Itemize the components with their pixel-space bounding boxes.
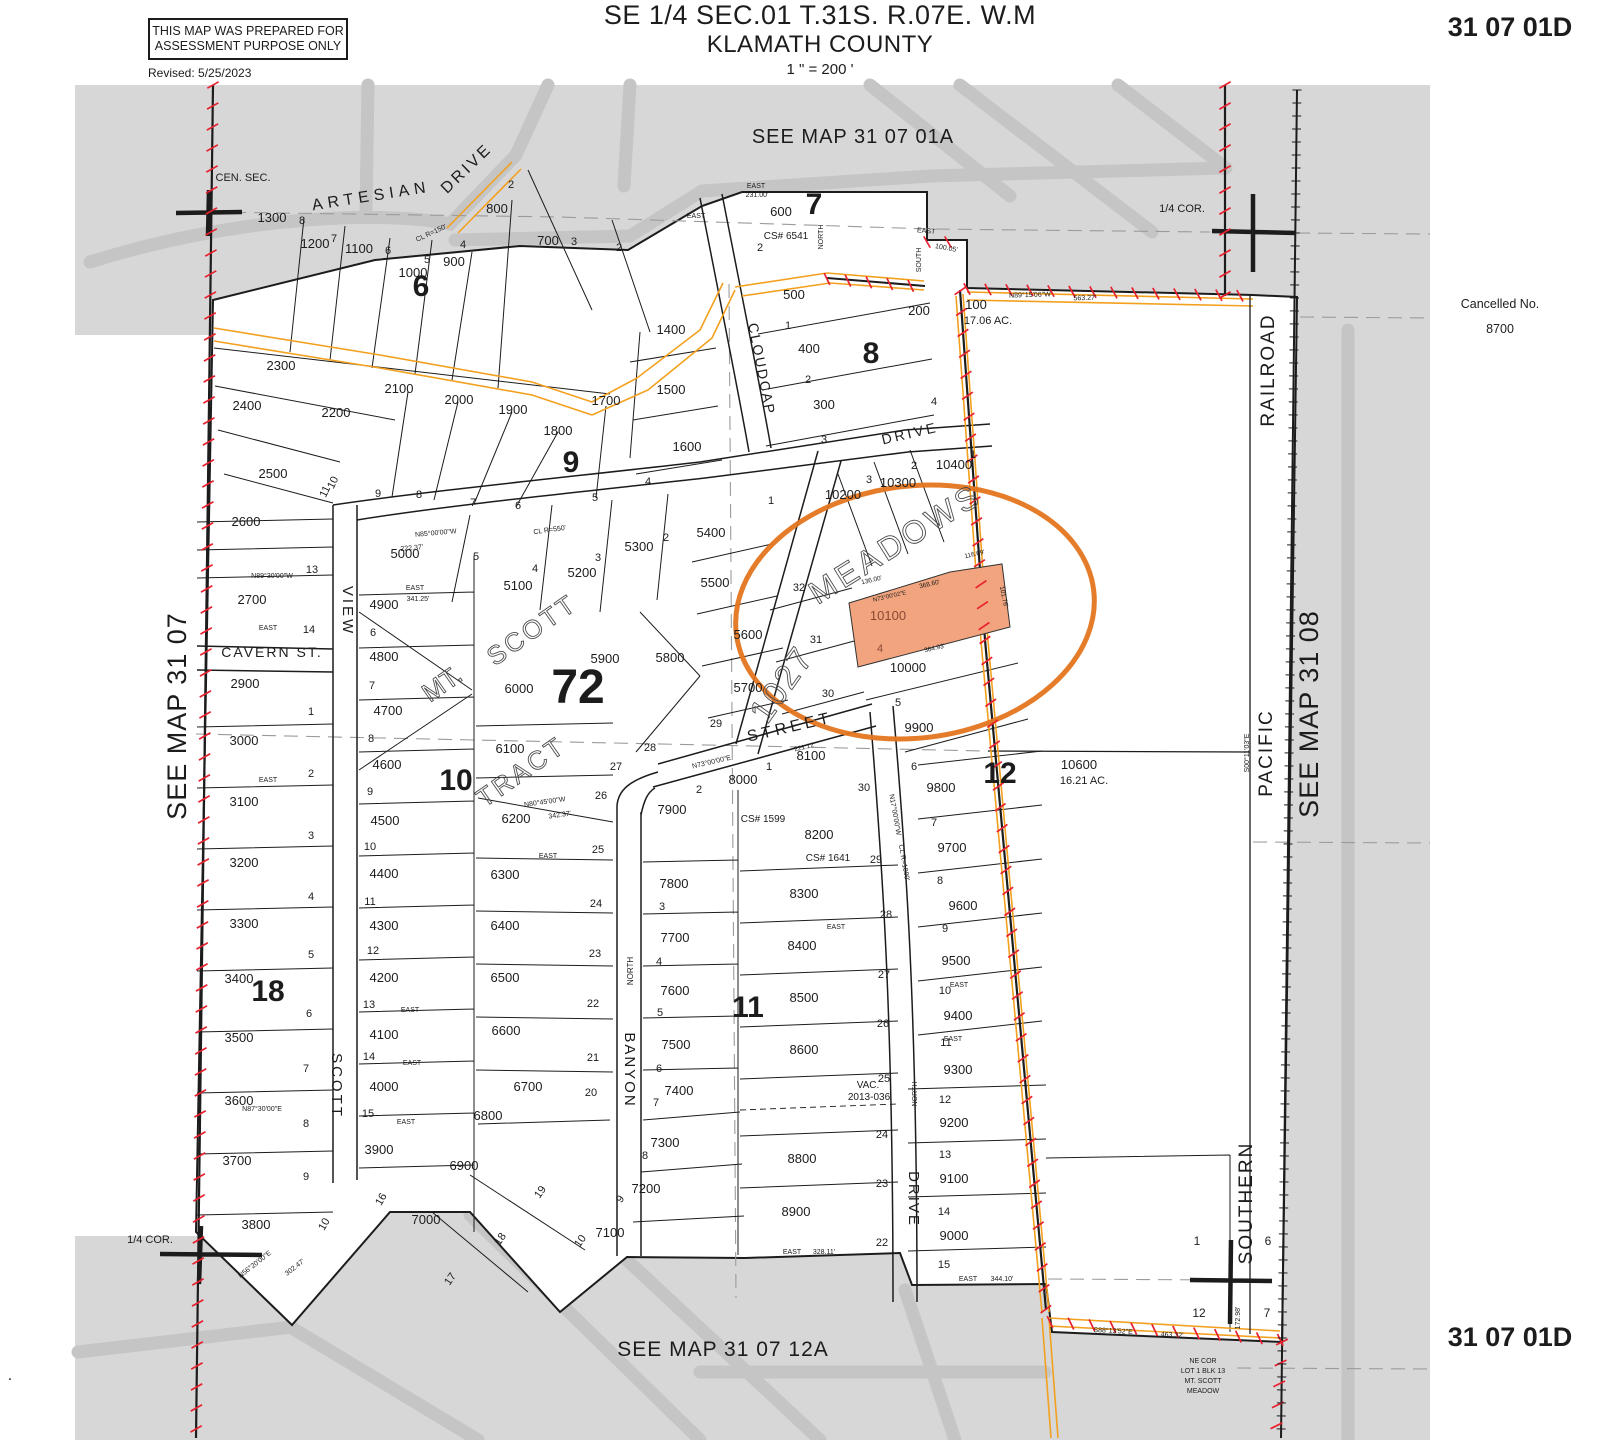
map-label: 2: [696, 784, 702, 796]
map-label: 9100: [940, 1171, 969, 1186]
map-label: 7: [303, 1063, 309, 1075]
map-label: 10: [364, 841, 376, 853]
map-label: NE COR: [1189, 1358, 1216, 1365]
plat-map-canvas: SEE MAP 31 07 01ASEE MAP 31 07 12ASEE MA…: [0, 0, 1600, 1440]
map-label: 5: [473, 551, 479, 563]
map-label: 4400: [370, 866, 399, 881]
map-label: 6200: [502, 811, 531, 826]
map-label: 8: [299, 215, 305, 227]
map-label: 1000: [399, 265, 428, 280]
map-label: 6900: [450, 1158, 479, 1173]
map-label: EAST: [959, 1276, 978, 1283]
map-label: 8200: [805, 827, 834, 842]
map-label: 3: [866, 474, 872, 486]
map-label: 9: [375, 488, 381, 500]
map-label: 4700: [374, 703, 403, 718]
map-label: 7800: [660, 876, 689, 891]
map-label: 3900: [365, 1142, 394, 1157]
map-label: 9: [563, 446, 580, 479]
map-label: LOT 1 BLK 13: [1181, 1368, 1225, 1375]
map-label: 6500: [491, 970, 520, 985]
map-label: 6300: [491, 867, 520, 882]
map-label: 4500: [371, 813, 400, 828]
map-label: 300: [813, 397, 835, 412]
map-label: 5600: [734, 627, 763, 642]
map-label: N89°30'00"W: [251, 572, 293, 580]
map-label: 1200: [301, 236, 330, 251]
map-label: 5200: [568, 565, 597, 580]
map-label: 17.06 AC.: [964, 315, 1012, 327]
map-label: 2: [663, 532, 669, 544]
map-label: 7600: [661, 983, 690, 998]
map-label: 5: [424, 254, 430, 266]
map-label: 4200: [370, 970, 399, 985]
map-label: 11: [364, 896, 375, 908]
map-label: EAST: [401, 1007, 420, 1014]
map-label: CS# 1641: [806, 853, 851, 864]
map-label: 3300: [230, 916, 259, 931]
map-label: 1700: [592, 393, 621, 408]
map-label: 7100: [596, 1225, 625, 1240]
map-label: 328.11': [813, 1249, 835, 1256]
map-label: PACIFIC: [1256, 709, 1277, 797]
map-label: 23: [589, 948, 601, 960]
map-label: EAST: [259, 777, 278, 784]
map-label: SEE MAP 31 07 01A: [752, 126, 954, 148]
map-label: 2600: [232, 514, 261, 529]
map-label: 1600: [673, 439, 702, 454]
map-label: 30: [822, 688, 834, 700]
map-label: EAST: [747, 183, 766, 190]
map-label: 6: [656, 1063, 662, 1075]
map-label: EAST: [783, 1249, 802, 1256]
map-label: 14: [303, 624, 315, 636]
map-label: SEE MAP 31 07 12A: [617, 1338, 829, 1361]
map-label: 9900: [905, 720, 934, 735]
map-label: 3200: [230, 855, 259, 870]
map-label: 7: [470, 497, 476, 509]
map-label: 25: [878, 1073, 890, 1085]
map-label: 2: [508, 179, 514, 191]
map-label: 29: [870, 854, 882, 866]
map-label: 3: [308, 830, 314, 842]
map-label: 12: [939, 1094, 951, 1106]
map-label: 4800: [370, 649, 399, 664]
map-label: 8500: [790, 990, 819, 1005]
map-label: 7300: [651, 1135, 680, 1150]
map-label: 3: [659, 901, 665, 913]
map-label: 9800: [927, 780, 956, 795]
map-label: 2200: [322, 405, 351, 420]
map-label: 4: [532, 563, 538, 575]
map-label: 20: [585, 1087, 597, 1099]
map-label: 31: [810, 634, 822, 646]
map-label: 3100: [230, 794, 259, 809]
map-label: EAST: [259, 625, 278, 632]
map-label: 8600: [790, 1042, 819, 1057]
map-label: CEN. SEC.: [215, 172, 270, 184]
map-label: 7700: [661, 930, 690, 945]
plat-map-page: SEE MAP 31 07 01ASEE MAP 31 07 12ASEE MA…: [0, 0, 1600, 1440]
map-label: SEE MAP 31 08: [1294, 610, 1324, 818]
map-label: 18: [251, 975, 284, 1008]
map-label: 4000: [370, 1079, 399, 1094]
map-label: 10100: [870, 608, 906, 623]
map-label: 700: [537, 233, 559, 248]
map-label: 200: [908, 303, 930, 318]
map-label: EAST: [406, 585, 425, 592]
map-label: 1: [308, 706, 314, 718]
map-label: EAST: [397, 1119, 416, 1126]
map-label: 500: [783, 287, 805, 302]
map-label: DRIVE: [905, 1171, 922, 1227]
map-label: 9500: [942, 953, 971, 968]
map-label: EAST: [687, 213, 706, 220]
map-label: 3500: [225, 1030, 254, 1045]
map-label: 2300: [267, 358, 296, 373]
map-label: 13: [363, 999, 375, 1011]
map-label: 463.32': [1161, 1331, 1184, 1339]
map-label: 563.27': [1073, 295, 1096, 303]
map-label: 1: [785, 320, 791, 332]
map-label: 6400: [491, 918, 520, 933]
map-label: 30: [858, 782, 870, 794]
map-label: 3: [595, 552, 601, 564]
map-label: 344.10': [991, 1276, 1014, 1283]
map-label: 6: [515, 500, 521, 512]
map-label: MEADOW: [1187, 1388, 1220, 1395]
map-label: 7500: [662, 1037, 691, 1052]
map-label: 8300: [790, 886, 819, 901]
map-label: 800: [486, 201, 508, 216]
map-label: 3: [571, 236, 577, 248]
map-label: 1/4 COR.: [1159, 203, 1205, 215]
map-label: 6: [306, 1008, 312, 1020]
map-label: VIEW: [339, 586, 356, 636]
map-label: 4: [931, 396, 937, 408]
map-label: 2500: [259, 466, 288, 481]
map-label: 32: [793, 582, 805, 594]
map-label: 13: [939, 1149, 951, 1161]
map-label: 1/4 COR.: [127, 1234, 173, 1246]
map-label: 4: [656, 956, 662, 968]
map-label: 11: [732, 991, 764, 1024]
map-label: CAVERN ST.: [221, 644, 322, 660]
map-label: 1800: [544, 423, 573, 438]
map-label: 1: [970, 449, 976, 461]
map-label: NORTH: [818, 225, 825, 250]
map-label: 13: [306, 564, 318, 576]
map-label: 12: [983, 757, 1016, 790]
map-label: 14: [938, 1206, 950, 1218]
map-label: S00°11'03"E: [1243, 733, 1251, 772]
map-label: 8000: [729, 772, 758, 787]
map-label: 10000: [890, 660, 926, 675]
map-label: 2400: [233, 398, 262, 413]
map-label: CS# 1599: [741, 814, 786, 825]
map-label: 5: [592, 492, 598, 504]
map-label: 2: [308, 768, 314, 780]
map-label: 7: [931, 817, 937, 829]
map-label: 4: [460, 239, 466, 251]
map-label: 10200: [825, 487, 861, 502]
map-label: 6: [911, 761, 917, 773]
map-label: 1400: [657, 322, 686, 337]
map-label: 5100: [504, 578, 533, 593]
map-label: 6600: [492, 1023, 521, 1038]
map-label: 7000: [412, 1212, 441, 1227]
map-label: 5: [308, 949, 314, 961]
map-label: .: [8, 1367, 12, 1384]
map-label: CS# 6541: [764, 231, 809, 242]
map-label: 7: [1264, 1306, 1271, 1320]
map-label: EAST: [950, 982, 969, 989]
map-label: 5800: [656, 650, 685, 665]
map-label: 24: [590, 898, 602, 910]
map-label: 9700: [938, 840, 967, 855]
map-label: EAST: [403, 1060, 422, 1067]
map-label: 9: [303, 1171, 309, 1183]
map-label: 8: [937, 875, 943, 887]
map-label: 1100: [345, 241, 373, 256]
map-label: 8: [863, 337, 880, 370]
map-label: 26: [595, 790, 607, 802]
map-label: 1: [766, 761, 772, 773]
map-label: EAST: [539, 853, 558, 860]
map-label: 8800: [788, 1151, 817, 1166]
map-label: NORTH: [626, 957, 635, 986]
map-label: 29: [710, 718, 722, 730]
map-label: 600: [770, 204, 792, 219]
map-label: 2700: [238, 592, 267, 607]
map-label: 6700: [514, 1079, 543, 1094]
map-label: 7: [331, 233, 337, 245]
map-label: 27: [878, 969, 890, 981]
map-label: 1500: [657, 382, 686, 397]
map-label: 10600: [1061, 757, 1097, 772]
map-label: 4600: [373, 757, 402, 772]
map-label: 5400: [697, 525, 726, 540]
map-label: 2: [911, 460, 917, 472]
map-label: 26: [877, 1018, 889, 1030]
map-label: 7200: [632, 1181, 661, 1196]
map-label: 1900: [499, 402, 528, 417]
map-label: 172.98': [1235, 1307, 1242, 1330]
map-label: 9300: [944, 1062, 973, 1077]
map-label: 6100: [496, 741, 525, 756]
map-label: BANYON: [621, 1032, 638, 1107]
map-label: 5300: [625, 539, 654, 554]
map-label: 4: [308, 891, 314, 903]
map-label: 22: [587, 998, 599, 1010]
map-label: 2900: [231, 676, 260, 691]
map-label: 8900: [782, 1204, 811, 1219]
map-label: EAST: [944, 1036, 963, 1043]
map-label: SCOTT: [328, 1053, 345, 1119]
map-label: 3000: [230, 733, 259, 748]
map-label: 9000: [940, 1228, 969, 1243]
map-label: 4: [645, 476, 651, 488]
map-label: 8: [303, 1118, 309, 1130]
map-label: 7: [369, 680, 375, 692]
map-label: 23: [876, 1178, 888, 1190]
map-label: 3400: [225, 971, 254, 986]
map-label: 8: [642, 1150, 648, 1162]
map-label: 10: [439, 764, 472, 797]
map-label: 4: [877, 643, 883, 655]
map-label: 28: [880, 909, 892, 921]
map-label: 10400: [936, 457, 972, 472]
map-label: 22: [876, 1237, 888, 1249]
map-label: N89°15'06"W: [1009, 290, 1051, 299]
map-label: 2013-036: [848, 1092, 891, 1103]
map-label: 5700: [734, 680, 763, 695]
map-label: 5500: [701, 575, 730, 590]
map-label: 6000: [505, 681, 534, 696]
map-label: 8: [416, 489, 422, 501]
map-label: 4900: [370, 597, 399, 612]
map-label: 1: [768, 495, 774, 507]
map-label: 341.25': [407, 596, 430, 603]
map-label: 15: [362, 1108, 374, 1120]
map-label: 24: [876, 1129, 888, 1141]
map-label: 5: [895, 697, 901, 709]
map-label: 9200: [940, 1115, 969, 1130]
map-label: MT. SCOTT: [1185, 1378, 1223, 1385]
map-label: 1: [1194, 1234, 1201, 1248]
map-label: 6800: [474, 1108, 503, 1123]
map-label: 9400: [944, 1008, 973, 1023]
map-label: 7900: [658, 802, 687, 817]
map-label: 4100: [370, 1027, 399, 1042]
map-label: 27: [610, 761, 622, 773]
map-label: 8400: [788, 938, 817, 953]
map-label: 14: [363, 1051, 375, 1063]
map-label: 15: [938, 1259, 950, 1271]
map-label: 7400: [665, 1083, 694, 1098]
map-label: 1300: [258, 210, 287, 225]
map-label: RAILROAD: [1258, 313, 1279, 426]
map-label: 72: [551, 661, 604, 714]
map-label: 2: [616, 242, 622, 254]
map-label: 400: [798, 341, 820, 356]
map-label: VAC.: [857, 1080, 880, 1091]
map-label: 12: [367, 945, 379, 957]
map-label: 9: [367, 786, 373, 798]
map-label: 21: [587, 1052, 599, 1064]
map-label: 3: [821, 434, 827, 446]
map-label: NORTH: [912, 1082, 919, 1107]
map-label: 12: [1192, 1306, 1206, 1320]
map-label: 2000: [445, 392, 474, 407]
map-label: 900: [443, 254, 465, 269]
map-label: 9: [942, 923, 948, 935]
map-label: 10300: [880, 475, 916, 490]
map-label: 2: [805, 374, 811, 386]
map-label: 6: [385, 245, 391, 257]
map-label: 28: [644, 742, 656, 754]
map-label: 7: [806, 188, 823, 221]
map-label: 5: [657, 1007, 663, 1019]
map-label: EAST: [827, 924, 846, 931]
map-label: 6: [1265, 1234, 1272, 1248]
map-label: N87°30'00"E: [242, 1105, 282, 1113]
map-label: 100: [965, 297, 987, 312]
map-label: 2: [757, 242, 763, 254]
map-label: SEE MAP 31 07: [162, 612, 192, 820]
map-label: 9600: [949, 898, 978, 913]
map-label: 3700: [223, 1153, 252, 1168]
map-label: 16.21 AC.: [1060, 775, 1108, 787]
map-label: SOUTH: [916, 248, 923, 273]
map-label: 7: [653, 1097, 659, 1109]
map-label: 6: [370, 627, 376, 639]
map-label: 25: [592, 844, 604, 856]
map-label: 2100: [385, 381, 414, 396]
map-label: 5900: [591, 651, 620, 666]
map-label: 4300: [370, 918, 399, 933]
map-label: 8: [368, 733, 374, 745]
map-label: 231.00': [746, 192, 769, 199]
map-label: SOUTHERN: [1236, 1142, 1257, 1265]
map-label: 3800: [242, 1217, 271, 1232]
